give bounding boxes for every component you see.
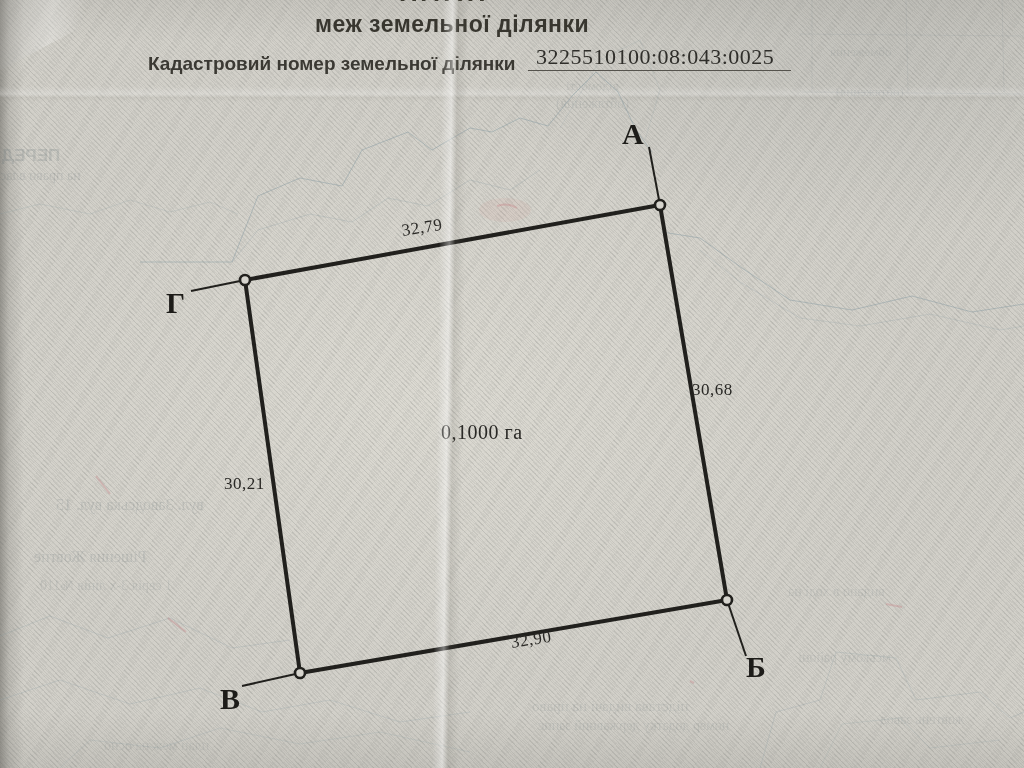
- vertex-ray-V: [242, 673, 300, 686]
- vertex-ray-B: [727, 600, 746, 656]
- bleedthrough-text: Рішення Жовтне: [34, 548, 147, 566]
- bleedthrough-text: підстава видачі на право: [532, 698, 689, 715]
- bleedthrough-text: (обтяження): [556, 96, 629, 112]
- bleedthrough-text: ПЕРЕД: [2, 146, 60, 166]
- bleedthrough-text: мському районі: [798, 650, 891, 666]
- photographed-cadastral-plan: ПЛАН меж земельної ділянки Кадастровий н…: [0, 0, 1024, 768]
- side-length-left: 30,21: [224, 474, 265, 494]
- vertex-ray-G: [191, 280, 245, 291]
- vertex-label-B: Б: [746, 650, 766, 684]
- vertex-ray-A: [649, 147, 660, 205]
- bleedthrough-text: номер додатку державний запис: [538, 718, 729, 734]
- vertex-point-V: [295, 668, 305, 678]
- bleedthrough-text: видано в ході на: [788, 584, 885, 600]
- bleedthrough-text: план меж на осно: [104, 738, 209, 754]
- cadastral-number-underline: [528, 69, 791, 71]
- vertex-label-A: А: [622, 117, 644, 151]
- bleedthrough-text: (обтяження): [836, 84, 904, 100]
- parcel-polygon: [191, 147, 746, 686]
- bleedthrough-text: вул. Заводська вул. 15: [56, 496, 204, 514]
- bleedthrough-text: на право влас: [0, 168, 81, 184]
- vertex-label-V: В: [220, 682, 240, 716]
- vertex-point-G: [240, 275, 250, 285]
- bleedthrough-text: відомості: [566, 78, 619, 94]
- vertex-label-G: Г: [166, 286, 185, 320]
- bleedthrough-text: жовтень завод: [880, 712, 964, 728]
- bleedthrough-text: обмеження: [830, 44, 891, 60]
- bleedthrough-text: 1 серія 3-х лінія №110: [40, 578, 172, 594]
- side-length-right: 30,68: [692, 380, 733, 400]
- vertex-point-A: [655, 200, 665, 210]
- cadastral-number-value: 3225510100:08:043:0025: [536, 44, 774, 70]
- vertex-point-B: [722, 595, 732, 605]
